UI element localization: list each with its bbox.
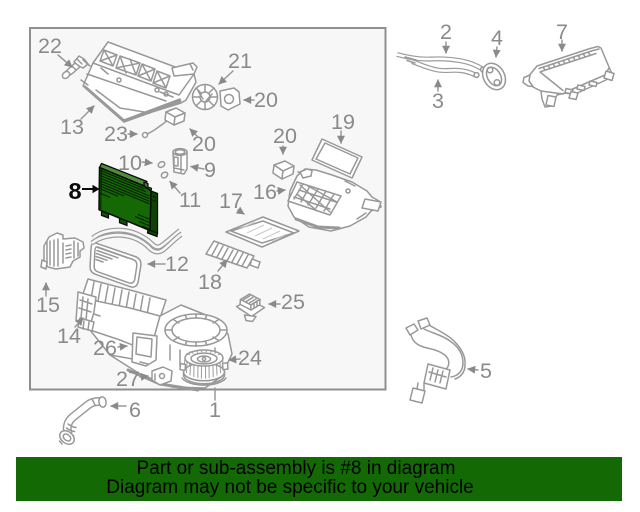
svg-text:14: 14 bbox=[57, 324, 81, 348]
svg-text:Diagram may not be specific to: Diagram may not be specific to your vehi… bbox=[106, 477, 474, 498]
svg-text:9: 9 bbox=[204, 158, 216, 182]
svg-text:11: 11 bbox=[179, 188, 201, 212]
svg-text:6: 6 bbox=[129, 398, 141, 422]
svg-text:3: 3 bbox=[432, 89, 444, 113]
svg-text:23: 23 bbox=[104, 122, 128, 146]
svg-text:17: 17 bbox=[219, 189, 243, 213]
svg-text:20: 20 bbox=[273, 124, 297, 148]
svg-text:5: 5 bbox=[480, 359, 492, 383]
svg-text:16: 16 bbox=[253, 180, 277, 204]
svg-text:2: 2 bbox=[440, 20, 452, 44]
svg-text:27: 27 bbox=[116, 367, 140, 391]
svg-text:1: 1 bbox=[209, 398, 221, 422]
svg-text:20: 20 bbox=[254, 88, 278, 112]
svg-text:26: 26 bbox=[93, 336, 117, 360]
svg-text:24: 24 bbox=[238, 346, 262, 370]
svg-text:12: 12 bbox=[165, 252, 189, 276]
svg-text:8: 8 bbox=[68, 178, 81, 204]
svg-text:15: 15 bbox=[36, 293, 60, 317]
svg-text:25: 25 bbox=[281, 290, 305, 314]
svg-text:21: 21 bbox=[228, 49, 252, 73]
svg-text:Part or sub-assembly is #8 in: Part or sub-assembly is #8 in diagram bbox=[137, 458, 456, 479]
svg-text:19: 19 bbox=[331, 110, 355, 134]
svg-text:18: 18 bbox=[198, 270, 222, 294]
